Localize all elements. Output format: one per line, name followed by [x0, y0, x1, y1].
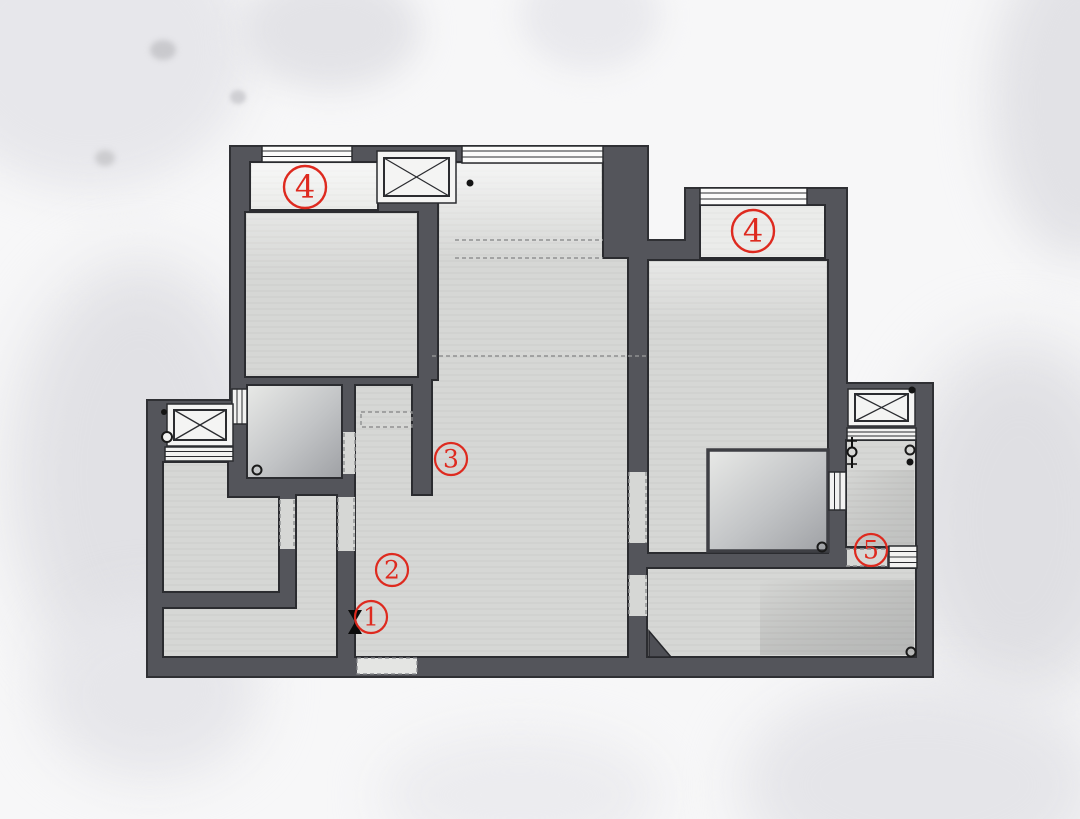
window-top-left — [262, 146, 352, 162]
room-bathroom-right — [708, 450, 828, 551]
pipe-riser-icon — [847, 437, 857, 468]
shaft-x-box-icon — [167, 404, 233, 446]
dot-marker — [161, 409, 167, 415]
marker-label: 3 — [443, 445, 459, 474]
shaft-x-box-icon — [377, 151, 456, 203]
window-right-wall — [829, 472, 846, 510]
window-corridor — [847, 428, 916, 440]
dot-marker — [467, 180, 474, 187]
marker-label: 2 — [384, 556, 400, 585]
window-top-right — [700, 188, 807, 205]
dot-marker — [909, 387, 916, 394]
shade-wash — [760, 580, 914, 655]
window-bathroom-left — [232, 389, 247, 424]
marker-label: 5 — [863, 536, 879, 565]
dot-marker — [907, 459, 914, 466]
marker-label: 1 — [363, 603, 379, 632]
shade-wash — [846, 470, 914, 546]
floor-plan-screenshot: 4 4 3 2 1 5 — [0, 0, 1080, 819]
drain-circle-icon — [162, 432, 172, 442]
shaft-x-box-icon — [848, 389, 915, 426]
window-top-middle — [462, 146, 603, 163]
room-bathroom-left — [247, 385, 342, 478]
light-wash — [247, 214, 416, 274]
light-wash — [650, 262, 826, 322]
window-bottom-right — [889, 546, 917, 568]
window-left — [165, 447, 233, 461]
light-wash — [440, 164, 601, 259]
marker-label: 4 — [743, 212, 763, 250]
marker-label: 4 — [295, 168, 315, 206]
floor-plan-svg: 4 4 3 2 1 5 — [0, 0, 1080, 819]
